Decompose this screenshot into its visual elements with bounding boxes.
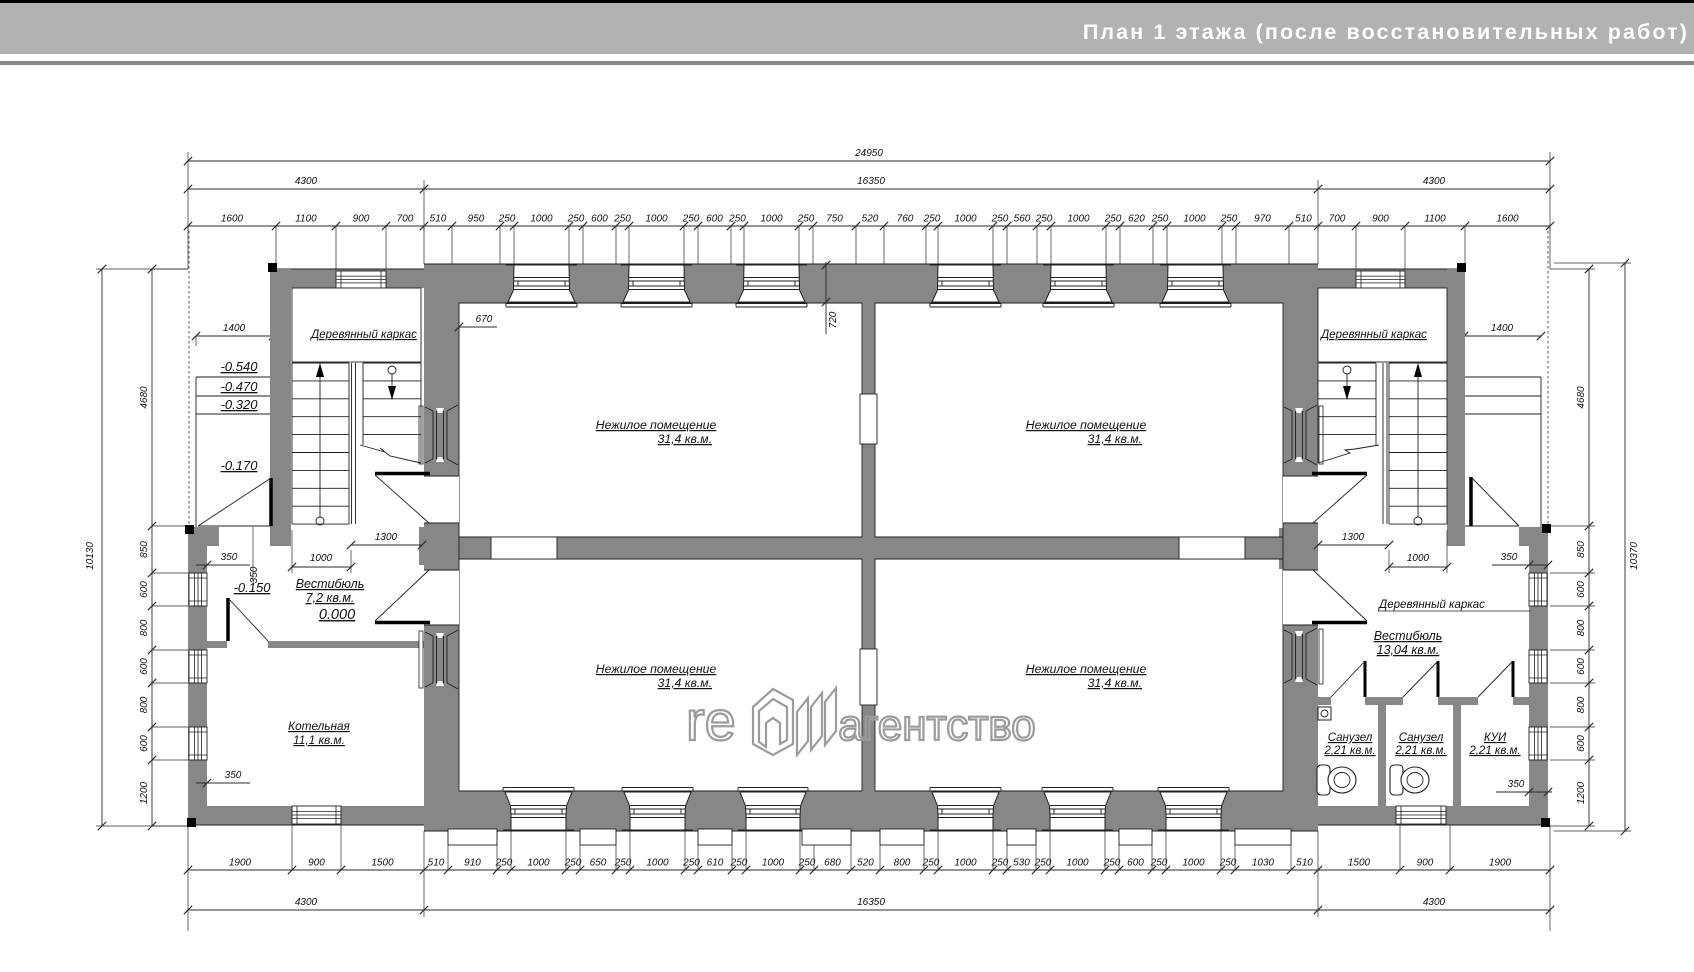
svg-text:800: 800 <box>139 696 150 713</box>
svg-text:250: 250 <box>922 858 940 869</box>
svg-text:1500: 1500 <box>371 858 394 869</box>
svg-text:250: 250 <box>1151 214 1169 225</box>
svg-text:600: 600 <box>591 214 608 225</box>
svg-text:250: 250 <box>564 858 582 869</box>
svg-text:КУИ: КУИ <box>1484 732 1507 744</box>
svg-text:Санузел: Санузел <box>1399 732 1444 744</box>
svg-text:1300: 1300 <box>1342 532 1365 543</box>
svg-text:250: 250 <box>797 214 815 225</box>
svg-text:350: 350 <box>249 566 260 583</box>
svg-text:1500: 1500 <box>1348 858 1371 869</box>
svg-text:760: 760 <box>897 214 914 225</box>
svg-text:1000: 1000 <box>1407 553 1430 564</box>
svg-text:24950: 24950 <box>854 148 883 159</box>
svg-text:250: 250 <box>1104 214 1122 225</box>
svg-text:1000: 1000 <box>954 214 977 225</box>
svg-text:31,4 кв.м.: 31,4 кв.м. <box>1088 676 1142 690</box>
svg-text:600: 600 <box>1127 858 1144 869</box>
svg-text:700: 700 <box>397 214 414 225</box>
svg-text:250: 250 <box>1035 214 1053 225</box>
svg-text:350: 350 <box>221 552 238 563</box>
svg-text:Нежилое помещение: Нежилое помещение <box>1026 662 1147 676</box>
svg-text:250: 250 <box>1219 858 1237 869</box>
svg-text:Деревянный каркас: Деревянный каркас <box>309 329 417 341</box>
svg-text:Вестибюль: Вестибюль <box>1374 629 1443 643</box>
svg-text:510: 510 <box>1295 214 1312 225</box>
svg-text:600: 600 <box>139 735 150 752</box>
svg-text:4300: 4300 <box>1423 897 1446 908</box>
svg-text:720: 720 <box>828 311 839 328</box>
svg-text:0.000: 0.000 <box>319 607 355 623</box>
svg-text:Деревянный каркас: Деревянный каркас <box>1377 599 1485 611</box>
svg-text:-0.540: -0.540 <box>221 359 259 374</box>
svg-text:250: 250 <box>991 214 1009 225</box>
svg-text:900: 900 <box>353 214 370 225</box>
svg-text:1000: 1000 <box>645 214 668 225</box>
svg-text:910: 910 <box>464 858 481 869</box>
svg-text:600: 600 <box>139 658 150 675</box>
svg-text:Нежилое помещение: Нежилое помещение <box>596 418 717 432</box>
svg-text:31,4 кв.м.: 31,4 кв.м. <box>658 432 712 446</box>
svg-text:250: 250 <box>730 858 748 869</box>
svg-text:1000: 1000 <box>1183 214 1206 225</box>
svg-text:1600: 1600 <box>1496 214 1519 225</box>
svg-text:1000: 1000 <box>1066 858 1089 869</box>
svg-text:970: 970 <box>1254 214 1271 225</box>
svg-text:680: 680 <box>824 858 841 869</box>
svg-text:-0.470: -0.470 <box>221 379 259 394</box>
svg-text:-0.320: -0.320 <box>221 397 259 412</box>
svg-text:250: 250 <box>728 214 746 225</box>
svg-text:250: 250 <box>682 214 700 225</box>
svg-text:250: 250 <box>613 214 631 225</box>
svg-text:10370: 10370 <box>1629 542 1640 570</box>
svg-text:4300: 4300 <box>1423 176 1446 187</box>
svg-text:1000: 1000 <box>954 858 977 869</box>
svg-text:950: 950 <box>468 214 485 225</box>
svg-text:250: 250 <box>567 214 585 225</box>
svg-text:900: 900 <box>1372 214 1389 225</box>
svg-text:800: 800 <box>894 858 911 869</box>
svg-text:-0.170: -0.170 <box>221 458 259 473</box>
svg-text:1000: 1000 <box>527 858 550 869</box>
svg-text:600: 600 <box>706 214 723 225</box>
svg-text:250: 250 <box>991 858 1009 869</box>
svg-text:1000: 1000 <box>760 214 783 225</box>
svg-text:600: 600 <box>1576 735 1587 752</box>
svg-text:250: 250 <box>1220 214 1238 225</box>
svg-text:350: 350 <box>225 770 242 781</box>
svg-text:16350: 16350 <box>857 176 885 187</box>
svg-text:1600: 1600 <box>221 214 244 225</box>
svg-text:520: 520 <box>857 858 874 869</box>
svg-text:350: 350 <box>1501 552 1518 563</box>
svg-text:250: 250 <box>498 214 516 225</box>
svg-text:900: 900 <box>308 858 325 869</box>
svg-text:4680: 4680 <box>1576 386 1587 409</box>
svg-text:31,4 кв.м.: 31,4 кв.м. <box>658 676 712 690</box>
svg-text:350: 350 <box>1508 779 1525 790</box>
svg-text:7,2 кв.м.: 7,2 кв.м. <box>306 591 355 605</box>
svg-text:31,4 кв.м.: 31,4 кв.м. <box>1088 432 1142 446</box>
svg-text:План 1 этажа (после восстанови: План 1 этажа (после восстановительных ра… <box>1083 20 1689 44</box>
svg-text:1200: 1200 <box>1576 781 1587 804</box>
svg-text:Санузел: Санузел <box>1328 732 1373 744</box>
svg-text:Вестибюль: Вестибюль <box>296 577 365 591</box>
svg-text:700: 700 <box>1329 214 1346 225</box>
svg-text:Котельная: Котельная <box>288 719 350 733</box>
svg-text:11,1 кв.м.: 11,1 кв.м. <box>293 733 345 747</box>
svg-text:520: 520 <box>862 214 879 225</box>
svg-text:4300: 4300 <box>295 897 318 908</box>
svg-text:4680: 4680 <box>139 386 150 409</box>
svg-text:800: 800 <box>1576 619 1587 636</box>
svg-text:13,04 кв.м.: 13,04 кв.м. <box>1377 643 1440 657</box>
svg-text:510: 510 <box>428 858 445 869</box>
svg-text:510: 510 <box>1296 858 1313 869</box>
svg-text:1000: 1000 <box>1067 214 1090 225</box>
svg-text:Нежилое помещение: Нежилое помещение <box>596 662 717 676</box>
svg-text:1300: 1300 <box>375 532 398 543</box>
svg-text:2,21 кв.м.: 2,21 кв.м. <box>1468 745 1520 757</box>
svg-text:800: 800 <box>1576 696 1587 713</box>
svg-text:Деревянный каркас: Деревянный каркас <box>1319 329 1427 341</box>
svg-text:600: 600 <box>139 581 150 598</box>
svg-text:1000: 1000 <box>530 214 553 225</box>
svg-text:250: 250 <box>614 858 632 869</box>
svg-text:10130: 10130 <box>85 542 96 570</box>
svg-text:900: 900 <box>1417 858 1434 869</box>
svg-text:1200: 1200 <box>139 781 150 804</box>
svg-text:650: 650 <box>590 858 607 869</box>
svg-text:250: 250 <box>1150 858 1168 869</box>
svg-text:2,21 кв.м.: 2,21 кв.м. <box>1394 745 1446 757</box>
svg-text:600: 600 <box>1576 658 1587 675</box>
svg-text:850: 850 <box>139 541 150 558</box>
svg-text:Нежилое помещение: Нежилое помещение <box>1026 418 1147 432</box>
svg-text:560: 560 <box>1014 214 1031 225</box>
svg-text:16350: 16350 <box>857 897 885 908</box>
svg-text:1400: 1400 <box>1491 323 1514 334</box>
svg-text:510: 510 <box>430 214 447 225</box>
svg-text:re: re <box>686 689 736 752</box>
svg-text:1400: 1400 <box>223 323 246 334</box>
svg-text:1000: 1000 <box>1182 858 1205 869</box>
svg-text:4300: 4300 <box>295 176 318 187</box>
svg-text:610: 610 <box>707 858 724 869</box>
svg-text:530: 530 <box>1013 858 1030 869</box>
svg-text:1000: 1000 <box>762 858 785 869</box>
svg-text:1100: 1100 <box>1424 214 1446 225</box>
svg-text:1900: 1900 <box>1489 858 1512 869</box>
svg-text:800: 800 <box>139 619 150 636</box>
svg-text:1900: 1900 <box>229 858 252 869</box>
svg-text:1030: 1030 <box>1252 858 1275 869</box>
svg-text:250: 250 <box>923 214 941 225</box>
svg-text:1000: 1000 <box>646 858 669 869</box>
svg-text:750: 750 <box>826 214 843 225</box>
svg-text:600: 600 <box>1576 581 1587 598</box>
svg-text:670: 670 <box>476 314 493 325</box>
svg-text:620: 620 <box>1128 214 1145 225</box>
svg-text:850: 850 <box>1576 541 1587 558</box>
svg-text:250: 250 <box>1034 858 1052 869</box>
svg-text:2,21 кв.м.: 2,21 кв.м. <box>1323 745 1375 757</box>
svg-text:1000: 1000 <box>310 553 333 564</box>
svg-text:250: 250 <box>495 858 513 869</box>
svg-text:1100: 1100 <box>295 214 317 225</box>
svg-text:агентство: агентство <box>838 701 1035 750</box>
svg-text:250: 250 <box>798 858 816 869</box>
svg-text:250: 250 <box>1103 858 1121 869</box>
